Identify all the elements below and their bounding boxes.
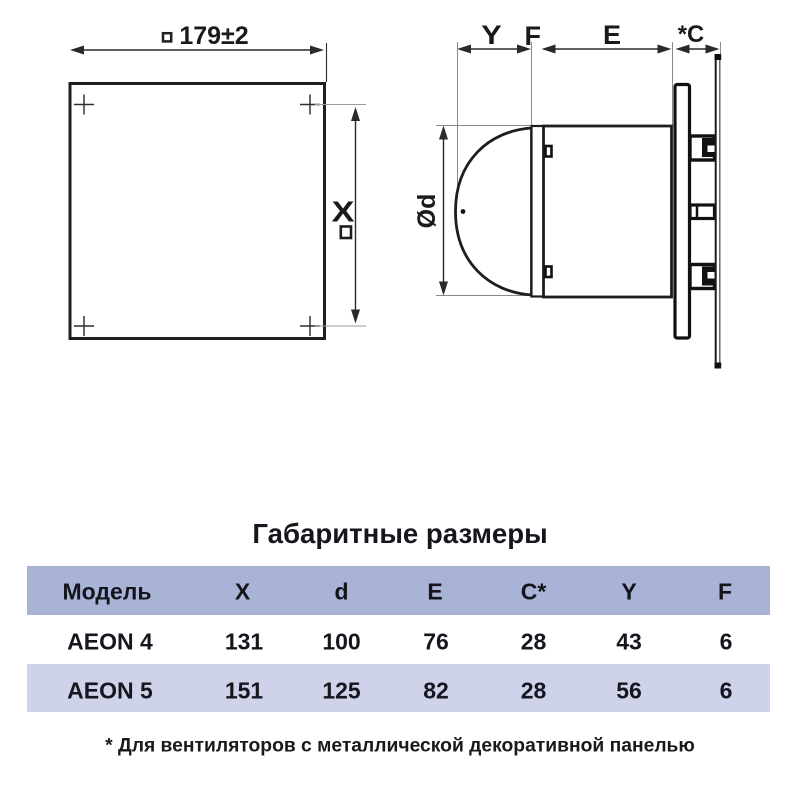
svg-text:28: 28 <box>521 629 547 655</box>
svg-text:131: 131 <box>225 629 264 655</box>
svg-text:56: 56 <box>616 678 642 704</box>
svg-text:X: X <box>235 579 251 605</box>
svg-text:100: 100 <box>322 629 360 655</box>
svg-text:179±2: 179±2 <box>179 22 248 50</box>
svg-text:AEON 5: AEON 5 <box>67 678 153 704</box>
svg-text:E: E <box>427 579 442 605</box>
svg-text:6: 6 <box>720 629 733 655</box>
svg-text:6: 6 <box>720 678 733 704</box>
svg-text:Y: Y <box>621 579 636 605</box>
svg-text:28: 28 <box>521 678 547 704</box>
svg-text:Модель: Модель <box>62 579 151 605</box>
svg-text:AEON 4: AEON 4 <box>67 629 153 655</box>
svg-text:Габаритные размеры: Габаритные размеры <box>252 518 547 549</box>
svg-text:F: F <box>524 21 541 51</box>
svg-text:125: 125 <box>322 678 361 704</box>
svg-text:d: d <box>334 579 348 605</box>
svg-text:C*: C* <box>521 579 547 605</box>
svg-text:82: 82 <box>423 678 449 704</box>
svg-text:43: 43 <box>616 629 642 655</box>
svg-text:Y: Y <box>481 20 502 50</box>
svg-text:F: F <box>718 579 732 605</box>
svg-text:E: E <box>603 20 621 50</box>
svg-text:X: X <box>332 195 355 228</box>
svg-text:Ød: Ød <box>413 194 441 229</box>
svg-text:* Для вентиляторов с металличе: * Для вентиляторов с металлической декор… <box>105 736 695 757</box>
svg-text:*C: *C <box>678 21 705 48</box>
svg-text:151: 151 <box>225 678 264 704</box>
svg-text:76: 76 <box>423 629 449 655</box>
